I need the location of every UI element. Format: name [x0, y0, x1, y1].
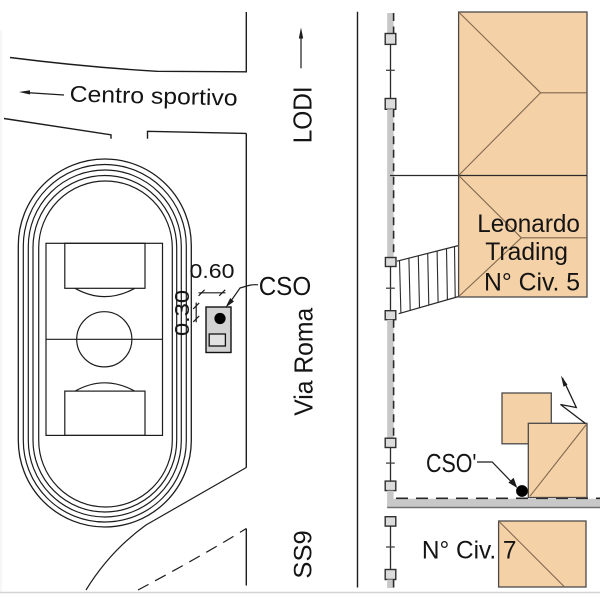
svg-text:Leonardo: Leonardo — [477, 210, 580, 238]
svg-text:N° Civ. 5: N° Civ. 5 — [484, 269, 580, 297]
svg-text:0.60: 0.60 — [190, 260, 235, 283]
svg-text:CSO: CSO — [259, 273, 312, 301]
svg-text:N° Civ. 7: N° Civ. 7 — [422, 537, 517, 565]
svg-text:0.30: 0.30 — [171, 290, 194, 336]
svg-text:Trading: Trading — [485, 238, 568, 266]
svg-text:Via Roma: Via Roma — [289, 307, 319, 416]
svg-text:SS9: SS9 — [289, 530, 317, 578]
svg-text:LODI: LODI — [288, 86, 318, 143]
svg-text:CSO': CSO' — [426, 448, 477, 478]
svg-text:Centro sportivo: Centro sportivo — [69, 82, 238, 111]
